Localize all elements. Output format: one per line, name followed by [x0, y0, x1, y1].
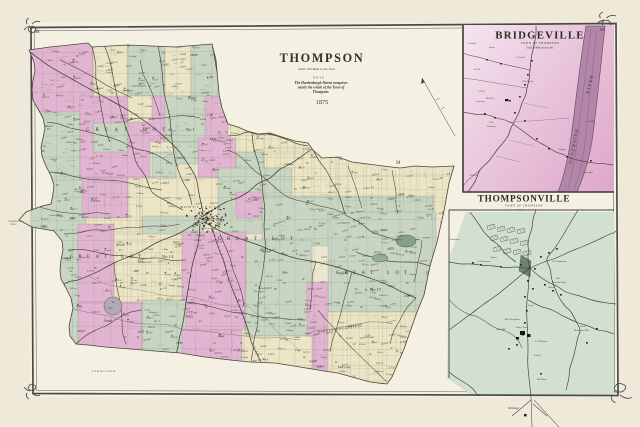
svg-text:W.Frey: W.Frey	[362, 263, 370, 267]
svg-text:R.Cole: R.Cole	[296, 157, 304, 160]
svg-text:T.Owen: T.Owen	[344, 205, 352, 208]
svg-text:J.Smith: J.Smith	[104, 249, 112, 252]
svg-text:VILLE: VILLE	[10, 223, 17, 226]
svg-text:68: 68	[35, 30, 41, 35]
svg-text:L.Ackley: L.Ackley	[467, 42, 477, 45]
svg-text:J.Smith: J.Smith	[310, 156, 318, 159]
svg-text:G.Roe: G.Roe	[377, 351, 383, 354]
svg-text:A.Lane: A.Lane	[112, 196, 120, 200]
svg-text:E.Hall: E.Hall	[284, 322, 292, 325]
svg-text:H.Sage: H.Sage	[103, 217, 111, 220]
svg-text:E.Hall: E.Hall	[244, 321, 252, 324]
svg-text:Houry: Houry	[488, 46, 496, 49]
svg-text:W.Gray: W.Gray	[376, 361, 384, 365]
svg-text:T.Owen: T.Owen	[337, 321, 345, 324]
svg-text:E.Burr: E.Burr	[43, 109, 51, 112]
svg-text:THOMPSON: THOMPSON	[280, 51, 365, 65]
svg-text:A.T.Gil: A.T.Gil	[477, 90, 485, 93]
svg-text:J.Kerr: J.Kerr	[61, 76, 67, 79]
svg-text:W.Frey: W.Frey	[166, 297, 174, 301]
svg-text:F.Page: F.Page	[135, 205, 143, 209]
svg-text:R.Cole: R.Cole	[399, 325, 407, 329]
svg-text:R.Cole: R.Cole	[327, 191, 334, 194]
svg-text:P.Webb: P.Webb	[338, 370, 347, 373]
svg-text:M.E.Ch.: M.E.Ch.	[485, 97, 494, 100]
svg-text:L: L	[209, 205, 211, 209]
svg-text:L.Carr: L.Carr	[175, 97, 183, 101]
svg-text:E: E	[105, 128, 108, 133]
svg-text:H.Sage: H.Sage	[259, 345, 267, 349]
svg-text:Office: Office	[548, 286, 555, 289]
svg-text:O.Reed: O.Reed	[90, 197, 98, 200]
svg-text:W.Frey: W.Frey	[408, 194, 416, 197]
svg-text:T.Fisk: T.Fisk	[387, 322, 394, 325]
svg-text:J.Kerr: J.Kerr	[138, 103, 144, 106]
svg-text:T: T	[162, 128, 165, 133]
svg-text:Thornton: Thornton	[487, 125, 497, 128]
svg-text:M.Beck: M.Beck	[257, 287, 266, 290]
svg-text:A.Lane: A.Lane	[69, 149, 77, 152]
svg-text:NOTE: NOTE	[313, 76, 325, 80]
svg-text:W.Gray: W.Gray	[164, 273, 172, 276]
svg-text:Shoe Box Mfy: Shoe Box Mfy	[552, 281, 567, 284]
svg-text:T.Owen: T.Owen	[145, 105, 153, 108]
svg-text:G.Roe: G.Roe	[297, 228, 303, 232]
svg-text:N.Hart: N.Hart	[152, 314, 160, 317]
svg-text:Pd.: Pd.	[47, 128, 51, 131]
svg-text:L.Mead: L.Mead	[379, 212, 388, 216]
svg-text:J.Kerr: J.Kerr	[126, 196, 132, 199]
svg-text:L.Mead: L.Mead	[178, 52, 187, 56]
svg-text:W.Frey: W.Frey	[70, 287, 78, 290]
svg-text:F.Page: F.Page	[73, 294, 81, 297]
svg-text:Bluestone Mill: Bluestone Mill	[574, 329, 589, 332]
svg-text:A.Cone: A.Cone	[168, 315, 176, 318]
svg-text:F.Page: F.Page	[257, 207, 265, 210]
svg-text:W.Frey: W.Frey	[266, 275, 274, 278]
svg-text:E.Hall: E.Hall	[313, 242, 321, 245]
svg-text:O.Reed: O.Reed	[162, 348, 170, 351]
svg-text:PART A: PART A	[338, 365, 349, 369]
svg-text:E: E	[205, 205, 207, 209]
svg-text:J.Smith: J.Smith	[379, 279, 387, 282]
svg-text:J.Dean: J.Dean	[138, 82, 146, 85]
svg-text:B.Knap: B.Knap	[299, 254, 307, 257]
svg-text:C.Hunt: C.Hunt	[255, 188, 262, 192]
svg-text:G.Roe: G.Roe	[309, 208, 315, 211]
svg-text:A.Cone: A.Cone	[217, 335, 225, 339]
svg-text:D.Hill: D.Hill	[119, 117, 126, 120]
svg-text:E: E	[236, 237, 239, 242]
svg-text:W.Gray: W.Gray	[125, 214, 133, 218]
svg-text:B.A.B.: B.A.B.	[474, 68, 481, 71]
svg-text:North: North	[115, 243, 125, 247]
svg-text:E.Burr: E.Burr	[117, 149, 124, 152]
svg-text:S.Ward: S.Ward	[46, 59, 54, 62]
svg-text:S.Ward: S.Ward	[308, 326, 316, 330]
svg-text:T: T	[124, 128, 127, 133]
svg-text:J.Kerr: J.Kerr	[64, 199, 70, 202]
svg-text:C.Bush: C.Bush	[186, 173, 194, 176]
svg-text:G: G	[336, 271, 340, 276]
svg-text:H.L.Rowley: H.L.Rowley	[521, 80, 534, 83]
svg-text:A.Cone: A.Cone	[170, 336, 178, 339]
svg-text:C.Powell: C.Powell	[516, 56, 525, 59]
svg-text:J.Smith: J.Smith	[241, 356, 249, 359]
svg-text:T: T	[138, 255, 141, 260]
svg-text:J.Arkills: J.Arkills	[586, 120, 594, 123]
svg-text:S.Kent: S.Kent	[162, 248, 169, 251]
svg-text:T.Owen: T.Owen	[231, 132, 239, 135]
svg-text:S.Ward: S.Ward	[171, 85, 179, 88]
svg-text:E.Burr: E.Burr	[303, 250, 311, 254]
svg-text:N.Hart: N.Hart	[344, 196, 352, 199]
svg-text:School: School	[534, 354, 541, 357]
svg-text:E.Hall: E.Hall	[208, 159, 216, 162]
svg-text:B.Knap: B.Knap	[372, 231, 380, 235]
svg-text:C.Bush: C.Bush	[175, 197, 183, 200]
svg-text:O.Reed: O.Reed	[395, 210, 403, 213]
svg-text:Schooley: Schooley	[476, 100, 486, 103]
svg-text:E.Hall: E.Hall	[146, 248, 154, 251]
svg-text:M.Beck: M.Beck	[92, 162, 101, 165]
svg-text:T.Owen: T.Owen	[263, 174, 271, 177]
svg-text:A.Lane: A.Lane	[102, 148, 110, 151]
svg-text:G: G	[218, 237, 222, 242]
svg-text:M: M	[180, 205, 183, 209]
svg-text:J.Dean: J.Dean	[127, 320, 135, 323]
svg-text:T.Owen: T.Owen	[414, 198, 422, 202]
svg-text:L: L	[272, 237, 275, 242]
svg-text:T: T	[370, 271, 373, 276]
svg-text:J.Kerr: J.Kerr	[100, 230, 106, 234]
svg-text:F.Page: F.Page	[66, 123, 74, 126]
svg-text:S.Kent: S.Kent	[100, 193, 107, 196]
svg-text:Rock: Rock	[579, 325, 586, 328]
svg-text:W.Gray: W.Gray	[303, 350, 311, 354]
svg-text:M.Beck: M.Beck	[373, 250, 382, 254]
svg-text:N.Hart: N.Hart	[187, 194, 195, 197]
svg-text:P.Webb: P.Webb	[242, 332, 251, 335]
svg-text:R.Cole: R.Cole	[139, 155, 147, 158]
svg-text:H.Sage: H.Sage	[385, 373, 393, 376]
svg-text:No 14: No 14	[162, 254, 174, 259]
svg-text:BRIDGEVILLE: BRIDGEVILLE	[495, 30, 584, 42]
svg-text:D.Hill: D.Hill	[300, 179, 307, 182]
svg-text:M.Dunn: M.Dunn	[255, 137, 265, 140]
svg-text:J.Kerr: J.Kerr	[52, 111, 58, 114]
svg-text:M.Dunn: M.Dunn	[191, 46, 201, 49]
svg-text:L: L	[121, 255, 124, 260]
svg-text:H.Sage: H.Sage	[304, 299, 312, 302]
svg-text:C.D.Wakeman: C.D.Wakeman	[552, 260, 567, 263]
svg-text:O: O	[153, 128, 157, 133]
svg-text:W.Frey: W.Frey	[77, 330, 85, 333]
svg-text:S.Ward: S.Ward	[55, 172, 63, 175]
svg-text:1875: 1875	[316, 99, 329, 106]
svg-text:TOWN OF THOMPSON: TOWN OF THOMPSON	[505, 205, 543, 208]
svg-text:M.Beck: M.Beck	[147, 326, 156, 329]
svg-text:A: A	[115, 128, 119, 133]
svg-text:E.Hall: E.Hall	[318, 222, 326, 226]
svg-text:T: T	[254, 237, 257, 242]
svg-text:N.Hart: N.Hart	[159, 224, 167, 227]
svg-text:E.Burr: E.Burr	[345, 304, 353, 308]
svg-text:Thompson.: Thompson.	[313, 90, 330, 94]
svg-text:G.Roe: G.Roe	[115, 121, 121, 124]
svg-text:T: T	[290, 237, 293, 242]
svg-text:E.Hall: E.Hall	[186, 316, 194, 319]
svg-text:Mrs.Houghton: Mrs.Houghton	[504, 318, 520, 321]
svg-text:E: E	[87, 255, 90, 260]
svg-text:G.Roe: G.Roe	[159, 228, 165, 232]
svg-text:P.Webb: P.Webb	[240, 350, 249, 353]
svg-text:D.Brown: D.Brown	[378, 294, 388, 297]
svg-text:A.Cone: A.Cone	[345, 337, 353, 340]
svg-text:J.Dean: J.Dean	[137, 192, 144, 195]
svg-text:W.Gray: W.Gray	[261, 153, 269, 156]
svg-text:E.Hall: E.Hall	[199, 118, 207, 121]
svg-text:H.Dill: H.Dill	[158, 60, 165, 63]
svg-text:S.Thompson: S.Thompson	[478, 260, 491, 263]
svg-text:J.Kerr: J.Kerr	[199, 149, 205, 152]
svg-text:G.Roe: G.Roe	[201, 64, 207, 67]
svg-text:Tanry Yard: Tanry Yard	[516, 326, 528, 329]
svg-text:R.Cole: R.Cole	[318, 296, 325, 299]
svg-text:A.Cone: A.Cone	[302, 148, 310, 152]
svg-text:M.Beck: M.Beck	[80, 216, 89, 219]
svg-text:THOMPSONVILLE: THOMPSONVILLE	[478, 194, 571, 204]
svg-text:A: A	[362, 271, 366, 276]
svg-text:J.Smith: J.Smith	[400, 336, 408, 339]
svg-text:T: T	[104, 255, 107, 260]
svg-text:J.C.DeLand: J.C.DeLand	[535, 340, 548, 343]
svg-text:A.Cone: A.Cone	[226, 279, 234, 282]
svg-text:B.Knap: B.Knap	[56, 94, 64, 97]
svg-text:C.Hunt: C.Hunt	[186, 67, 193, 71]
svg-text:H.Sage: H.Sage	[105, 62, 113, 65]
svg-text:R.Cole: R.Cole	[252, 215, 260, 219]
svg-text:Store: Store	[528, 304, 534, 307]
svg-text:R.Cole: R.Cole	[215, 183, 223, 187]
svg-text:M.Beck: M.Beck	[368, 296, 377, 300]
svg-text:A: A	[245, 237, 249, 242]
svg-text:F.Page: F.Page	[201, 100, 209, 103]
svg-text:B.Knap: B.Knap	[286, 329, 294, 332]
svg-text:J.Smith: J.Smith	[90, 83, 98, 86]
svg-text:E.Hall: E.Hall	[210, 228, 218, 231]
svg-text:O.Reed: O.Reed	[316, 208, 324, 211]
svg-text:L.Carr: L.Carr	[108, 49, 116, 53]
svg-text:G.Roe: G.Roe	[369, 280, 375, 283]
svg-text:D.Brown: D.Brown	[374, 370, 384, 373]
svg-text:E.Burr: E.Burr	[121, 154, 128, 157]
svg-text:G.Roe: G.Roe	[177, 341, 183, 344]
svg-text:O.Reed: O.Reed	[244, 159, 252, 162]
svg-text:G: G	[86, 128, 90, 133]
svg-text:O.Reed: O.Reed	[310, 321, 318, 324]
svg-text:L.Mead: L.Mead	[128, 55, 137, 58]
svg-text:B.Sandman: B.Sandman	[448, 238, 460, 241]
svg-text:South: South	[104, 319, 112, 323]
svg-text:C.Hunt: C.Hunt	[91, 141, 98, 144]
svg-text:G: G	[70, 255, 74, 260]
svg-text:T.Fisk: T.Fisk	[93, 249, 100, 252]
svg-text:D.Hill: D.Hill	[132, 178, 139, 181]
svg-text:O: O	[281, 237, 285, 242]
svg-text:O.Reed: O.Reed	[390, 252, 398, 255]
svg-text:H.Dill: H.Dill	[427, 208, 434, 211]
svg-text:McWhite: McWhite	[536, 378, 547, 381]
svg-text:S.Kent: S.Kent	[264, 227, 271, 231]
svg-text:D.Hill: D.Hill	[388, 197, 395, 200]
svg-text:W.Frey: W.Frey	[157, 297, 165, 301]
svg-text:J.Smith: J.Smith	[105, 71, 113, 74]
svg-text:L: L	[143, 128, 146, 133]
svg-text:E.Hall: E.Hall	[146, 152, 154, 155]
svg-text:C.Hunt: C.Hunt	[364, 216, 371, 219]
svg-text:R.T.Gile: R.T.Gile	[469, 174, 478, 177]
svg-text:L.M.: L.M.	[488, 121, 494, 124]
svg-text:The Hardenburgh Patent compris: The Hardenburgh Patent comprises	[294, 81, 348, 85]
svg-text:O: O	[396, 271, 400, 276]
svg-text:D.Hill: D.Hill	[397, 231, 404, 234]
svg-text:G.Roe: G.Roe	[209, 312, 215, 315]
svg-text:L.Mead: L.Mead	[254, 352, 263, 356]
svg-text:S.Kent: S.Kent	[364, 187, 371, 190]
svg-text:nearly the whole of the Town: nearly the whole of the Town of	[298, 86, 346, 90]
svg-text:C.Bush: C.Bush	[298, 324, 306, 327]
svg-text:L: L	[387, 271, 390, 276]
svg-text:Cane Mill: Cane Mill	[496, 328, 506, 331]
svg-text:M.Dunn: M.Dunn	[116, 174, 126, 177]
svg-text:M.Beck: M.Beck	[155, 171, 164, 175]
svg-text:L.Carr: L.Carr	[144, 261, 152, 265]
svg-text:F.Page: F.Page	[380, 316, 388, 320]
svg-text:C.Bush: C.Bush	[229, 193, 237, 196]
svg-text:L: L	[214, 205, 216, 209]
svg-text:Scale 100 Rods to the Inch.: Scale 100 Rods to the Inch.	[298, 67, 335, 71]
svg-text:H.Dill: H.Dill	[210, 277, 217, 280]
svg-text:A: A	[96, 255, 100, 260]
svg-text:A.Cone: A.Cone	[118, 286, 126, 289]
svg-text:M: M	[396, 161, 401, 166]
svg-text:H.Sage: H.Sage	[331, 216, 339, 219]
svg-text:W.Frey: W.Frey	[224, 314, 232, 318]
svg-text:G.Roe: G.Roe	[160, 136, 166, 140]
svg-text:No 1: No 1	[186, 127, 195, 132]
svg-text:L u m b e r l a n d: L u m b e r l a n d	[91, 369, 115, 373]
svg-text:F.Page: F.Page	[96, 65, 104, 68]
svg-text:H.Dill: H.Dill	[222, 153, 229, 156]
svg-text:G: G	[339, 157, 343, 162]
svg-text:O: O	[130, 255, 134, 260]
svg-text:B.Knap: B.Knap	[52, 50, 60, 53]
svg-text:TOWN OF THOMPSON: TOWN OF THOMPSON	[521, 42, 559, 45]
svg-text:P.Webb: P.Webb	[315, 365, 324, 368]
svg-text:M.Dunn: M.Dunn	[72, 77, 82, 80]
svg-text:E.Burr: E.Burr	[294, 349, 302, 352]
svg-text:L.Mead: L.Mead	[396, 193, 405, 197]
svg-text:C.Hunt: C.Hunt	[320, 356, 327, 359]
svg-text:Lounsbury: Lounsbury	[582, 171, 594, 174]
svg-text:C.Bush: C.Bush	[148, 235, 156, 239]
svg-text:E: E	[353, 271, 356, 276]
svg-text:E.Hall: E.Hall	[93, 200, 101, 204]
svg-text:N.Hart: N.Hart	[326, 213, 334, 216]
svg-text:Bridge: Bridge	[559, 148, 566, 151]
svg-text:D.W.: D.W.	[555, 277, 561, 280]
svg-text:69: 69	[600, 27, 605, 32]
svg-text:T: T	[404, 271, 407, 276]
svg-text:W.Frey: W.Frey	[79, 191, 87, 194]
svg-text:No 17: No 17	[370, 287, 382, 292]
svg-text:A.Lane: A.Lane	[408, 273, 416, 276]
svg-text:D.Hill: D.Hill	[283, 163, 290, 166]
svg-text:M.Dunn: M.Dunn	[222, 187, 232, 190]
svg-text:No 13: No 13	[260, 248, 272, 253]
svg-text:L.Mead: L.Mead	[193, 239, 202, 242]
svg-text:A.Lane: A.Lane	[78, 123, 86, 126]
svg-text:S.Kent: S.Kent	[268, 353, 275, 356]
svg-text:S.Kent: S.Kent	[253, 304, 260, 308]
svg-text:C.Bush: C.Bush	[428, 186, 436, 189]
svg-text:A.Cone: A.Cone	[121, 314, 129, 317]
svg-text:N.Hart: N.Hart	[167, 205, 175, 208]
svg-text:O.Reed: O.Reed	[265, 286, 273, 290]
svg-text:P.Webb: P.Webb	[211, 268, 220, 272]
svg-text:L.Carr: L.Carr	[75, 305, 83, 308]
svg-text:P.Webb: P.Webb	[125, 118, 134, 121]
svg-text:A.Cone: A.Cone	[77, 188, 85, 191]
svg-text:A.Lane: A.Lane	[432, 178, 440, 182]
svg-text:Scale 30 Rods to the inch.: Scale 30 Rods to the inch.	[527, 47, 554, 50]
svg-text:J.Dean: J.Dean	[281, 253, 288, 256]
svg-text:R.Cole: R.Cole	[358, 343, 365, 346]
svg-text:S.Kent: S.Kent	[294, 336, 301, 339]
svg-text:C.Hunt: C.Hunt	[417, 216, 424, 220]
svg-text:McKinapp: McKinapp	[507, 407, 520, 410]
svg-text:Adams: Adams	[489, 256, 497, 259]
svg-text:C.Bush: C.Bush	[168, 284, 176, 287]
